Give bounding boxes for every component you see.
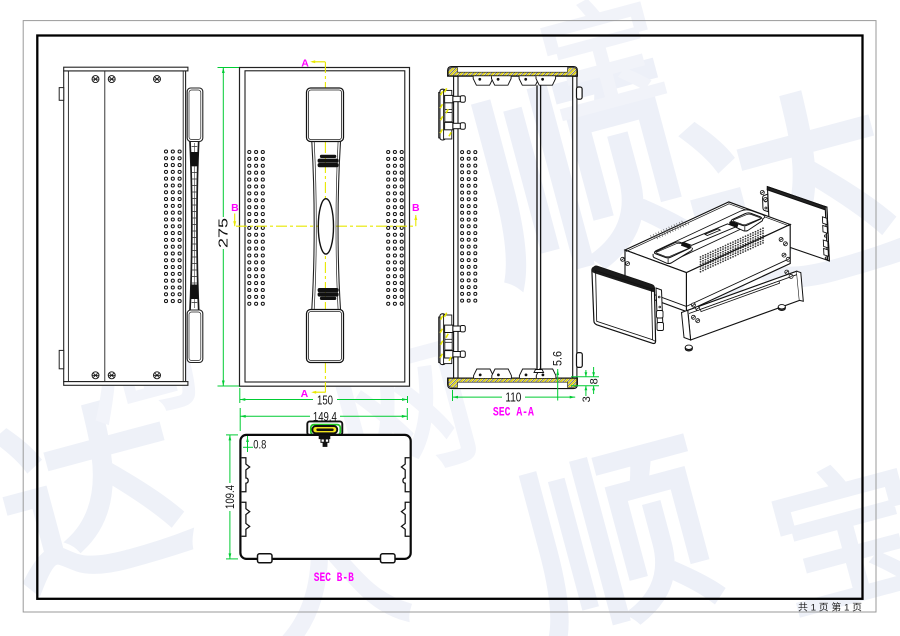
svg-text:3: 3 (581, 396, 593, 402)
svg-text:SEC A-A: SEC A-A (493, 405, 534, 420)
svg-text:共 1 页 第 1 页: 共 1 页 第 1 页 (798, 602, 862, 614)
svg-text:B: B (231, 202, 239, 214)
svg-text:8: 8 (589, 378, 601, 384)
svg-text:109.4: 109.4 (225, 484, 237, 509)
svg-text:110: 110 (505, 391, 521, 405)
svg-text:5.6: 5.6 (553, 351, 565, 366)
svg-text:顺: 顺 (501, 416, 739, 636)
svg-text:B: B (412, 202, 420, 214)
svg-text:0.8: 0.8 (253, 440, 266, 452)
svg-text:A: A (301, 388, 309, 400)
svg-text:150: 150 (317, 393, 333, 407)
svg-text:A: A (301, 58, 309, 70)
svg-text:SEC B-B: SEC B-B (314, 570, 354, 585)
svg-text:275: 275 (217, 218, 231, 248)
